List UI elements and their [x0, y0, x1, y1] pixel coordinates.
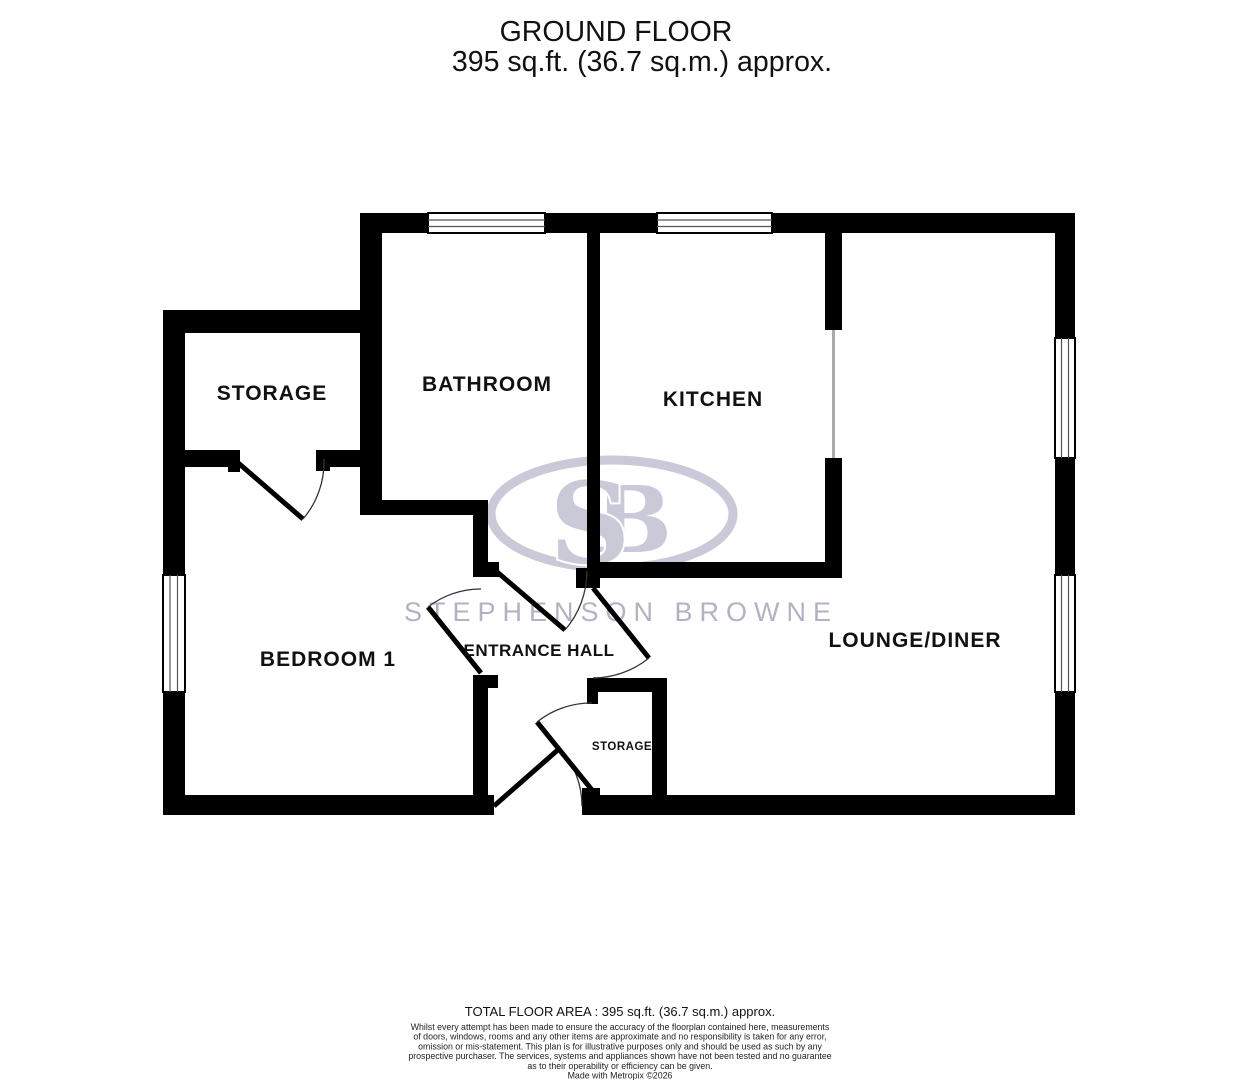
watermark: B S STEPHENSON BROWNE	[404, 459, 838, 627]
room-label-storage-small: STORAGE	[592, 741, 652, 753]
door-storage-main	[236, 459, 324, 519]
wall-bottom-left	[163, 795, 494, 815]
floorplan-page: GROUND FLOOR 395 sq.ft. (36.7 sq.m.) app…	[0, 0, 1239, 1080]
footer-disclaimer-line4: prospective purchaser. The services, sys…	[408, 1051, 831, 1061]
wall-kitchen-lounge-upper	[825, 233, 842, 330]
wall-closet-bottom-jamb	[582, 788, 600, 815]
wall-closet-right	[652, 678, 667, 815]
footer-total-area: TOTAL FLOOR AREA : 395 sq.ft. (36.7 sq.m…	[465, 1004, 775, 1019]
title-line2: 395 sq.ft. (36.7 sq.m.) approx.	[452, 46, 832, 78]
wall-bedroom-lower-cap	[473, 675, 498, 688]
window-lounge-upper	[1055, 338, 1075, 458]
window-bathroom	[428, 213, 545, 233]
footer-disclaimer-line2: of doors, windows, rooms and any other i…	[413, 1032, 826, 1042]
room-label-bathroom: BATHROOM	[422, 373, 552, 396]
window-kitchen	[657, 213, 772, 233]
opening-line-kitchen-lounge	[832, 330, 835, 458]
wall-storage-top	[163, 310, 380, 333]
footer-disclaimer-line1: Whilst every attempt has been made to en…	[411, 1022, 830, 1032]
wall-bedroom-right-upper	[473, 500, 488, 577]
room-label-storage-main: STORAGE	[217, 382, 327, 405]
wall-bedroom-right-lower	[473, 675, 488, 797]
footer-disclaimer-line3: omission or mis-statement. This plan is …	[418, 1041, 822, 1051]
wall-bathroom-left	[360, 213, 382, 515]
footer-credit: Made with Metropix ©2026	[568, 1071, 673, 1080]
wall-storage-door-jamb-right	[316, 450, 330, 471]
window-bedroom	[163, 575, 185, 692]
room-label-lounge-diner: LOUNGE/DINER	[828, 629, 1001, 652]
room-label-bedroom1: BEDROOM 1	[260, 648, 396, 671]
door-entrance	[494, 748, 582, 806]
wall-bathroom-kitchen-divider	[587, 233, 600, 588]
room-label-kitchen: KITCHEN	[663, 388, 763, 411]
wall-bathroom-bottom	[366, 500, 488, 515]
plan-title: GROUND FLOOR 395 sq.ft. (36.7 sq.m.) app…	[452, 16, 832, 78]
wall-right	[1055, 213, 1075, 815]
wall-left	[163, 310, 185, 815]
floorplan-svg: GROUND FLOOR 395 sq.ft. (36.7 sq.m.) app…	[0, 0, 1239, 1080]
wall-kitchen-bottom	[598, 562, 840, 578]
footer-disclaimer-line5: as to their operability or efficiency ca…	[527, 1061, 712, 1071]
wall-closet-left-stub	[587, 678, 598, 704]
room-label-entrance-hall: ENTRANCE HALL	[464, 641, 615, 660]
title-line1: GROUND FLOOR	[500, 16, 733, 48]
door-storage-small	[537, 703, 592, 790]
footer: TOTAL FLOOR AREA : 395 sq.ft. (36.7 sq.m…	[408, 1004, 831, 1080]
wall-kitchen-lounge-lower	[825, 458, 842, 578]
window-lounge-lower	[1055, 575, 1075, 692]
